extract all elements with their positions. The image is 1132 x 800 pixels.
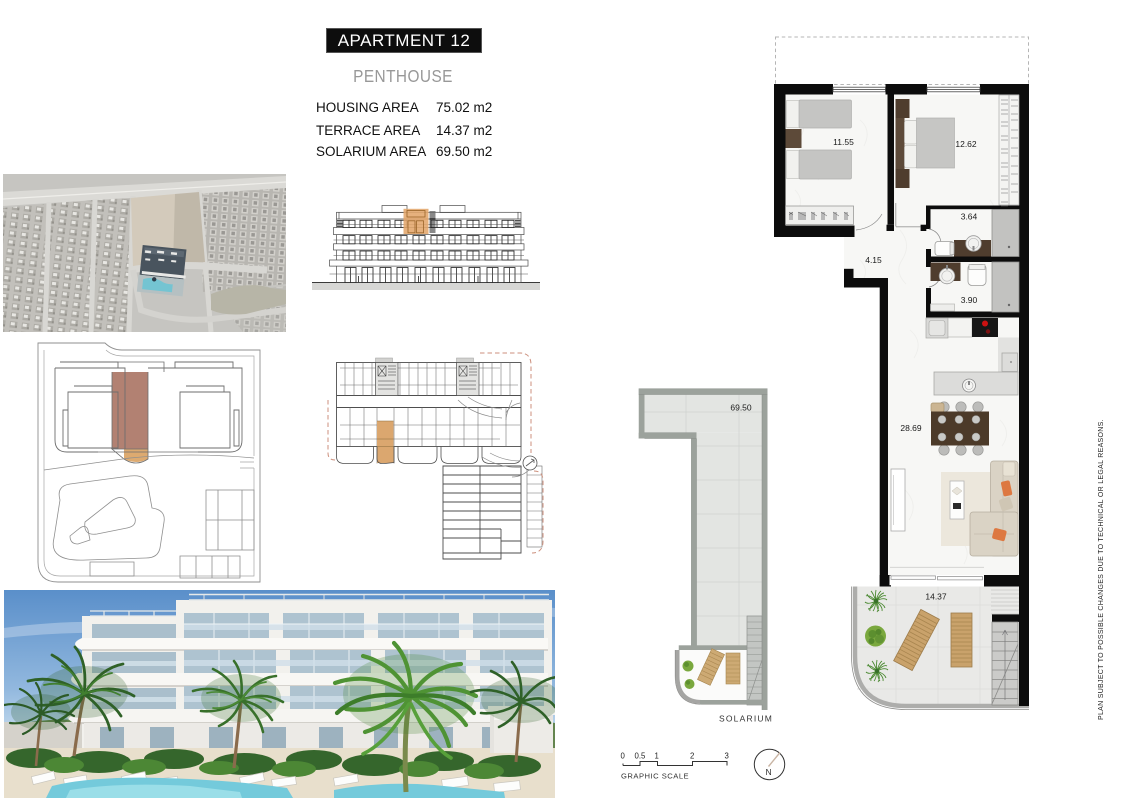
svg-text:12.62: 12.62: [955, 139, 977, 149]
svg-text:14.37: 14.37: [925, 592, 947, 602]
svg-text:4.15: 4.15: [865, 255, 882, 265]
svg-text:3.90: 3.90: [961, 295, 978, 305]
svg-text:SOLARIUM: SOLARIUM: [719, 714, 773, 724]
svg-text:69.50: 69.50: [730, 403, 752, 413]
svg-text:N: N: [766, 767, 772, 777]
svg-text:28.69: 28.69: [900, 423, 922, 433]
svg-text:1: 1: [655, 752, 659, 761]
svg-text:GRAPHIC SCALE: GRAPHIC SCALE: [621, 772, 689, 781]
svg-text:11.55: 11.55: [833, 137, 854, 147]
svg-text:0.5: 0.5: [635, 752, 647, 761]
svg-text:2: 2: [690, 752, 694, 761]
svg-text:0: 0: [621, 752, 626, 761]
svg-text:3.64: 3.64: [961, 212, 978, 222]
svg-text:3: 3: [725, 752, 729, 761]
